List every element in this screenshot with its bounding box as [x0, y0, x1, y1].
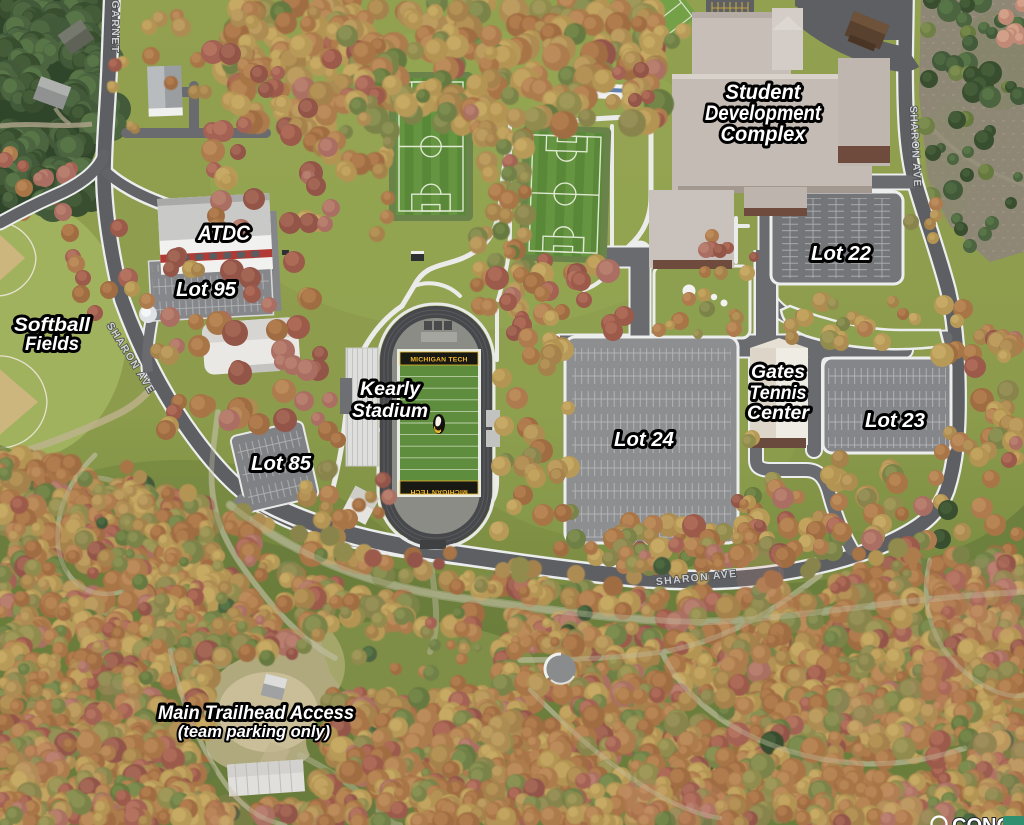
svg-text:MICHIGAN TECH: MICHIGAN TECH: [410, 357, 467, 364]
svg-text:MICHIGAN TECH: MICHIGAN TECH: [410, 488, 467, 495]
